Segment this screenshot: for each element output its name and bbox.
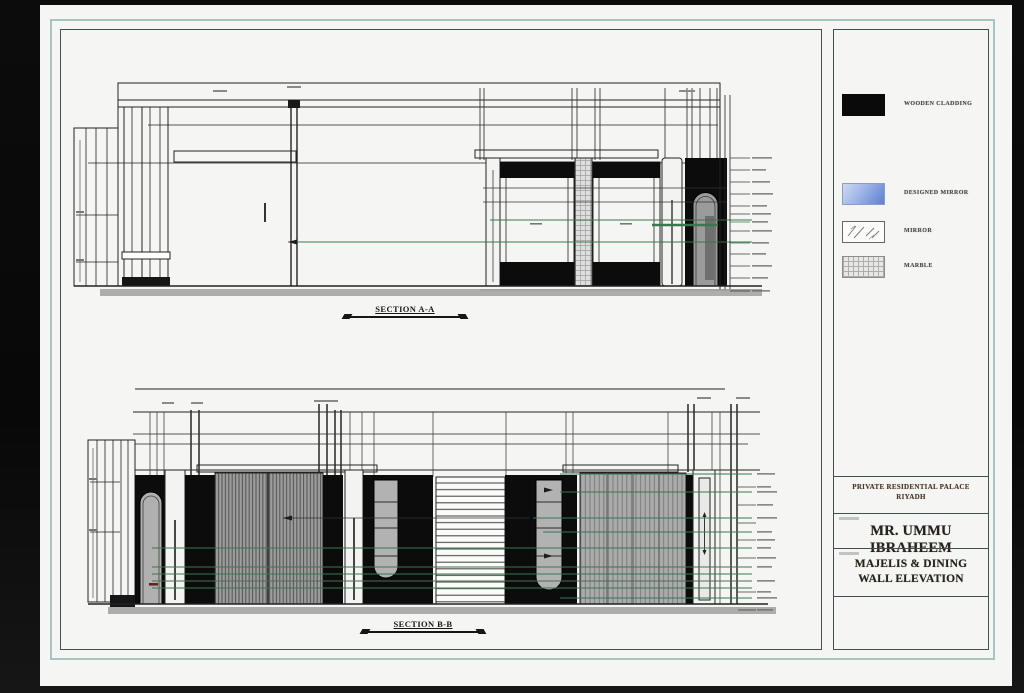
section-b-underline xyxy=(368,631,478,634)
section-a-title: SECTION A-A xyxy=(350,304,460,314)
section-a-drawing xyxy=(74,83,773,296)
elevation-drawing xyxy=(0,0,1024,693)
scanned-drawing-photo: WOODEN CLADDING DESIGNED MIRROR MIRROR M… xyxy=(0,0,1024,693)
section-b-label: SECTION B-B xyxy=(368,619,478,633)
section-a-label: SECTION A-A xyxy=(350,304,460,318)
section-a-underline xyxy=(350,316,460,319)
section-b-drawing xyxy=(88,389,777,614)
section-b-title: SECTION B-B xyxy=(368,619,478,629)
